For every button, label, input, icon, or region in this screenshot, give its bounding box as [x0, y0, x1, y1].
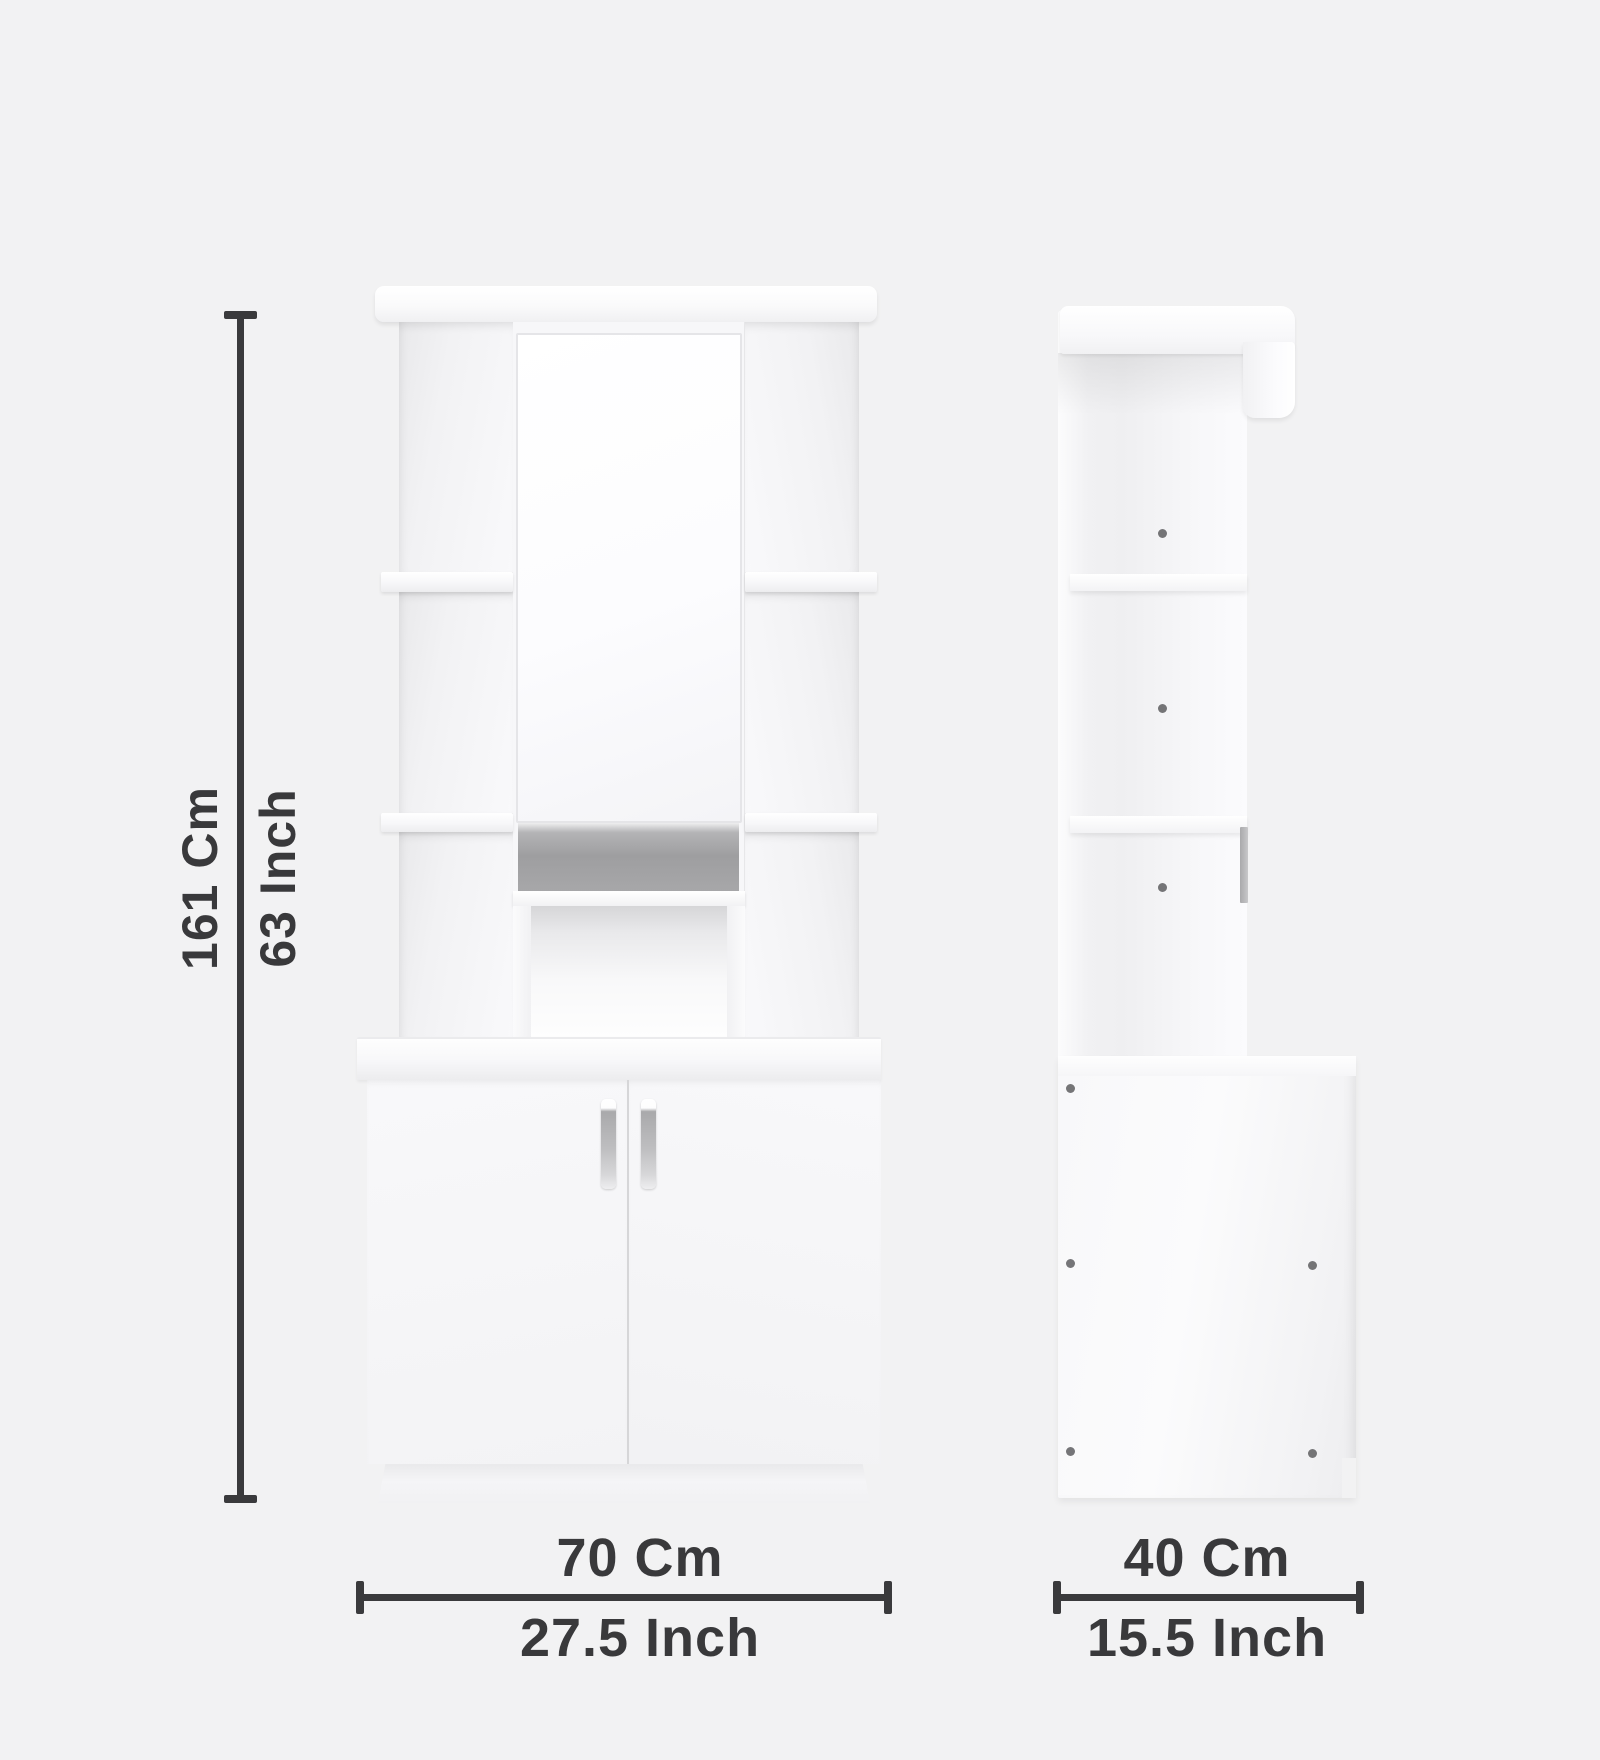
- cabinet-door-left: [367, 1080, 627, 1464]
- counter-top: [357, 1037, 881, 1080]
- width-dimension-line: [360, 1594, 888, 1601]
- depth-label-inch: 15.5 Inch: [1087, 1607, 1327, 1669]
- depth-dimension-cap-left: [1053, 1581, 1061, 1614]
- height-label-cm: 161 Cm: [171, 786, 229, 970]
- cubby-stile-right: [727, 906, 745, 1040]
- dressing-table-dimension-diagram: 161 Cm 63 Inch 70 Cm 27.5 Inch 40 Cm 15.…: [0, 0, 1600, 1760]
- mirror-edge-strip: [1240, 827, 1248, 903]
- width-dimension-cap-right: [884, 1581, 892, 1614]
- screw-cap-dot: [1066, 1259, 1075, 1268]
- crown-top-panel: [375, 286, 877, 322]
- door-gap: [627, 1080, 629, 1464]
- cubby-stile-left: [513, 906, 531, 1040]
- right-shelf-compartment-top: [745, 322, 859, 572]
- mirror-reflection-strip: [518, 823, 739, 891]
- height-dimension-line: [237, 311, 244, 1503]
- height-dimension-cap-top: [224, 311, 257, 319]
- screw-cap-dot: [1066, 1447, 1075, 1456]
- mirror-door: [516, 333, 742, 823]
- height-dimension-cap-bottom: [224, 1495, 257, 1503]
- height-label-inch: 63 Inch: [249, 788, 307, 967]
- plinth-base: [378, 1464, 870, 1503]
- open-cubby: [531, 906, 727, 1040]
- side-crown-overhang: [1243, 342, 1295, 418]
- screw-cap-dot: [1308, 1261, 1317, 1270]
- left-shelf-lower: [381, 813, 513, 832]
- width-label-cm: 70 Cm: [556, 1527, 723, 1589]
- side-cabinet: [1058, 1056, 1356, 1498]
- mirror-bottom-shelf-edge: [513, 891, 745, 906]
- side-shelf-lower: [1070, 816, 1247, 833]
- right-shelf-compartment-middle: [745, 592, 859, 813]
- door-handle-left: [601, 1099, 616, 1189]
- cabinet-door-right: [629, 1080, 881, 1464]
- peg-hole-dot: [1158, 883, 1167, 892]
- side-shelf-upper: [1070, 574, 1247, 591]
- depth-dimension-line: [1057, 1594, 1360, 1601]
- peg-hole-dot: [1158, 704, 1167, 713]
- side-cabinet-top-edge: [1058, 1056, 1356, 1076]
- side-panel: [1058, 310, 1247, 1060]
- screw-cap-dot: [1066, 1084, 1075, 1093]
- left-shelf-compartment-bottom: [399, 832, 513, 1040]
- right-shelf-compartment-bottom: [745, 832, 859, 1040]
- right-shelf-lower: [745, 813, 877, 832]
- plinth-notch: [1342, 1458, 1356, 1498]
- screw-cap-dot: [1308, 1449, 1317, 1458]
- width-dimension-cap-left: [356, 1581, 364, 1614]
- depth-label-cm: 40 Cm: [1123, 1527, 1290, 1589]
- left-shelf-upper: [381, 572, 513, 592]
- depth-dimension-cap-right: [1356, 1581, 1364, 1614]
- peg-hole-dot: [1158, 529, 1167, 538]
- door-handle-right: [641, 1099, 656, 1189]
- left-shelf-compartment-middle: [399, 592, 513, 813]
- right-shelf-upper: [745, 572, 877, 592]
- left-shelf-compartment-top: [399, 322, 513, 572]
- side-panel-top-shadow: [1058, 353, 1247, 415]
- width-label-inch: 27.5 Inch: [520, 1607, 760, 1669]
